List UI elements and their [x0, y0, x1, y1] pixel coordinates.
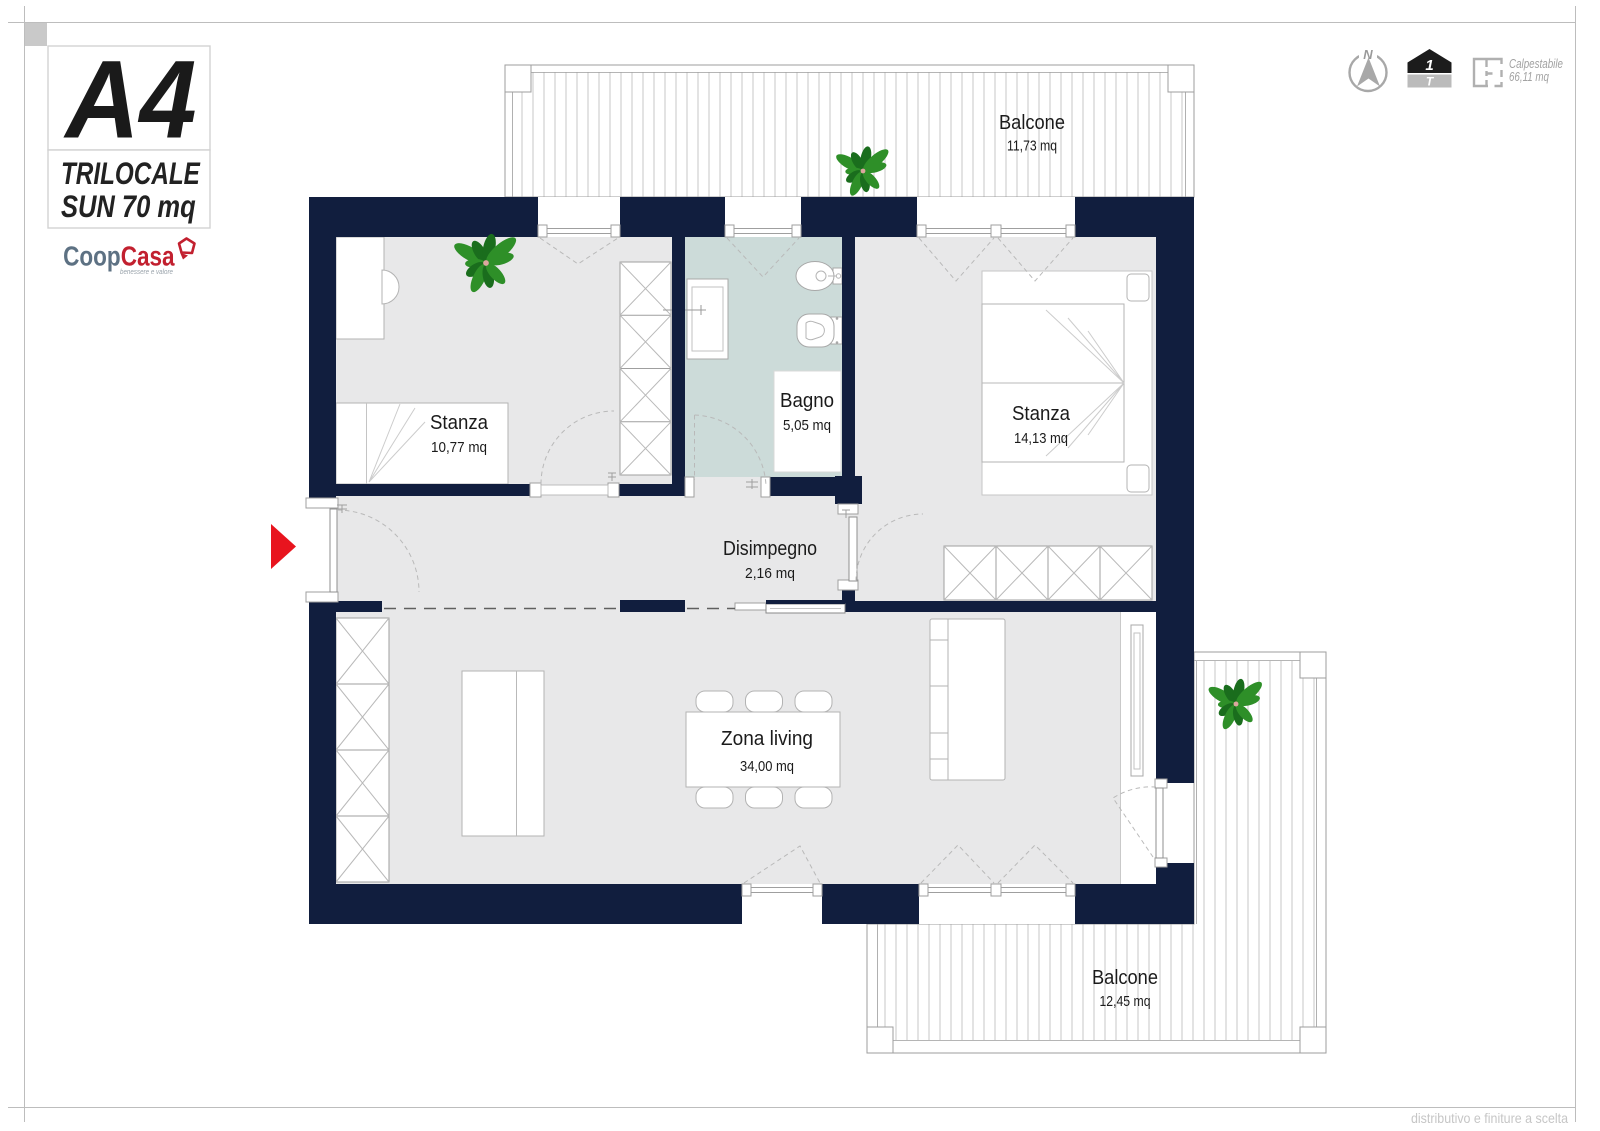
svg-text:A4: A4	[63, 39, 197, 162]
svg-text:12,45 mq: 12,45 mq	[1100, 993, 1151, 1010]
svg-text:1: 1	[1425, 57, 1433, 74]
svg-text:11,73 mq: 11,73 mq	[1007, 138, 1057, 155]
svg-text:benessere e valore: benessere e valore	[120, 269, 173, 276]
svg-text:Stanza: Stanza	[430, 412, 489, 434]
svg-text:Balcone: Balcone	[999, 111, 1065, 134]
svg-text:distributivo e finiture a scel: distributivo e finiture a scelta	[1411, 1110, 1568, 1126]
svg-text:TRILOCALE: TRILOCALE	[61, 156, 201, 191]
svg-text:10,77 mq: 10,77 mq	[431, 439, 487, 456]
svg-text:SUN 70 mq: SUN 70 mq	[61, 190, 196, 225]
svg-text:Balcone: Balcone	[1092, 966, 1158, 989]
svg-text:CoopCasa: CoopCasa	[63, 241, 175, 272]
svg-text:Stanza: Stanza	[1012, 403, 1071, 425]
svg-text:14,13 mq: 14,13 mq	[1014, 430, 1068, 447]
svg-text:Disimpegno: Disimpegno	[723, 538, 817, 560]
svg-text:34,00 mq: 34,00 mq	[740, 758, 794, 775]
svg-text:2,16 mq: 2,16 mq	[745, 565, 795, 582]
svg-text:66,11 mq: 66,11 mq	[1509, 69, 1550, 84]
svg-text:5,05 mq: 5,05 mq	[783, 417, 831, 434]
svg-text:Bagno: Bagno	[780, 390, 834, 412]
svg-text:Zona living: Zona living	[721, 728, 813, 750]
